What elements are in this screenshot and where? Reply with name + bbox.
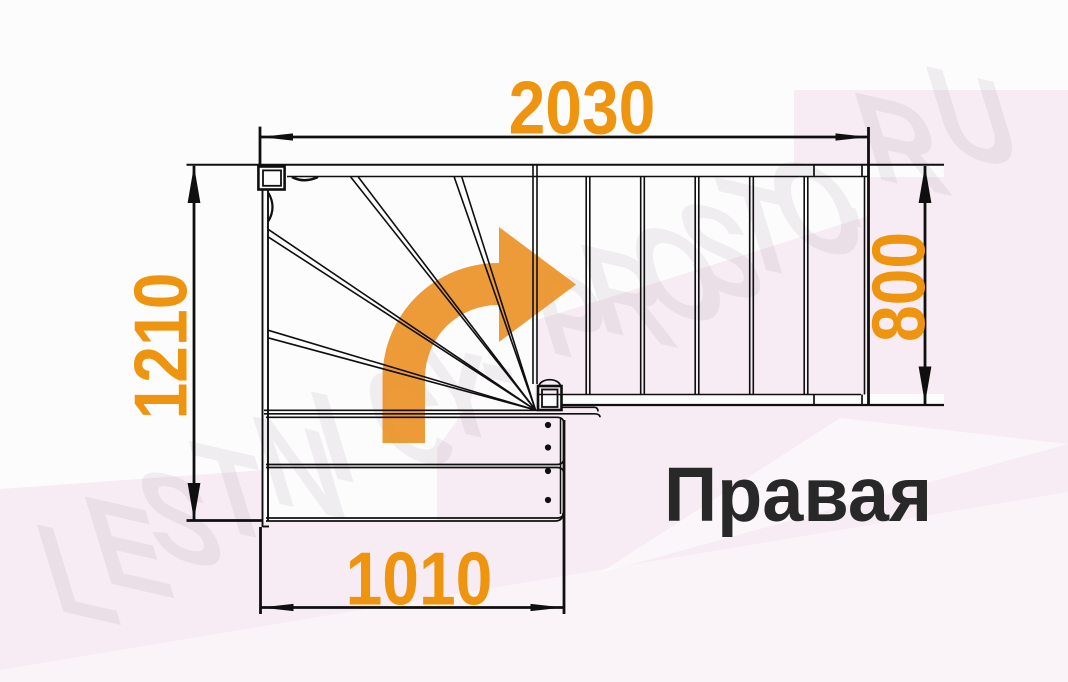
svg-text:800: 800: [857, 232, 941, 342]
svg-text:1010: 1010: [346, 537, 493, 621]
svg-text:2030: 2030: [509, 66, 656, 150]
svg-text:1210: 1210: [119, 273, 203, 420]
svg-text:Правая: Правая: [664, 452, 932, 538]
